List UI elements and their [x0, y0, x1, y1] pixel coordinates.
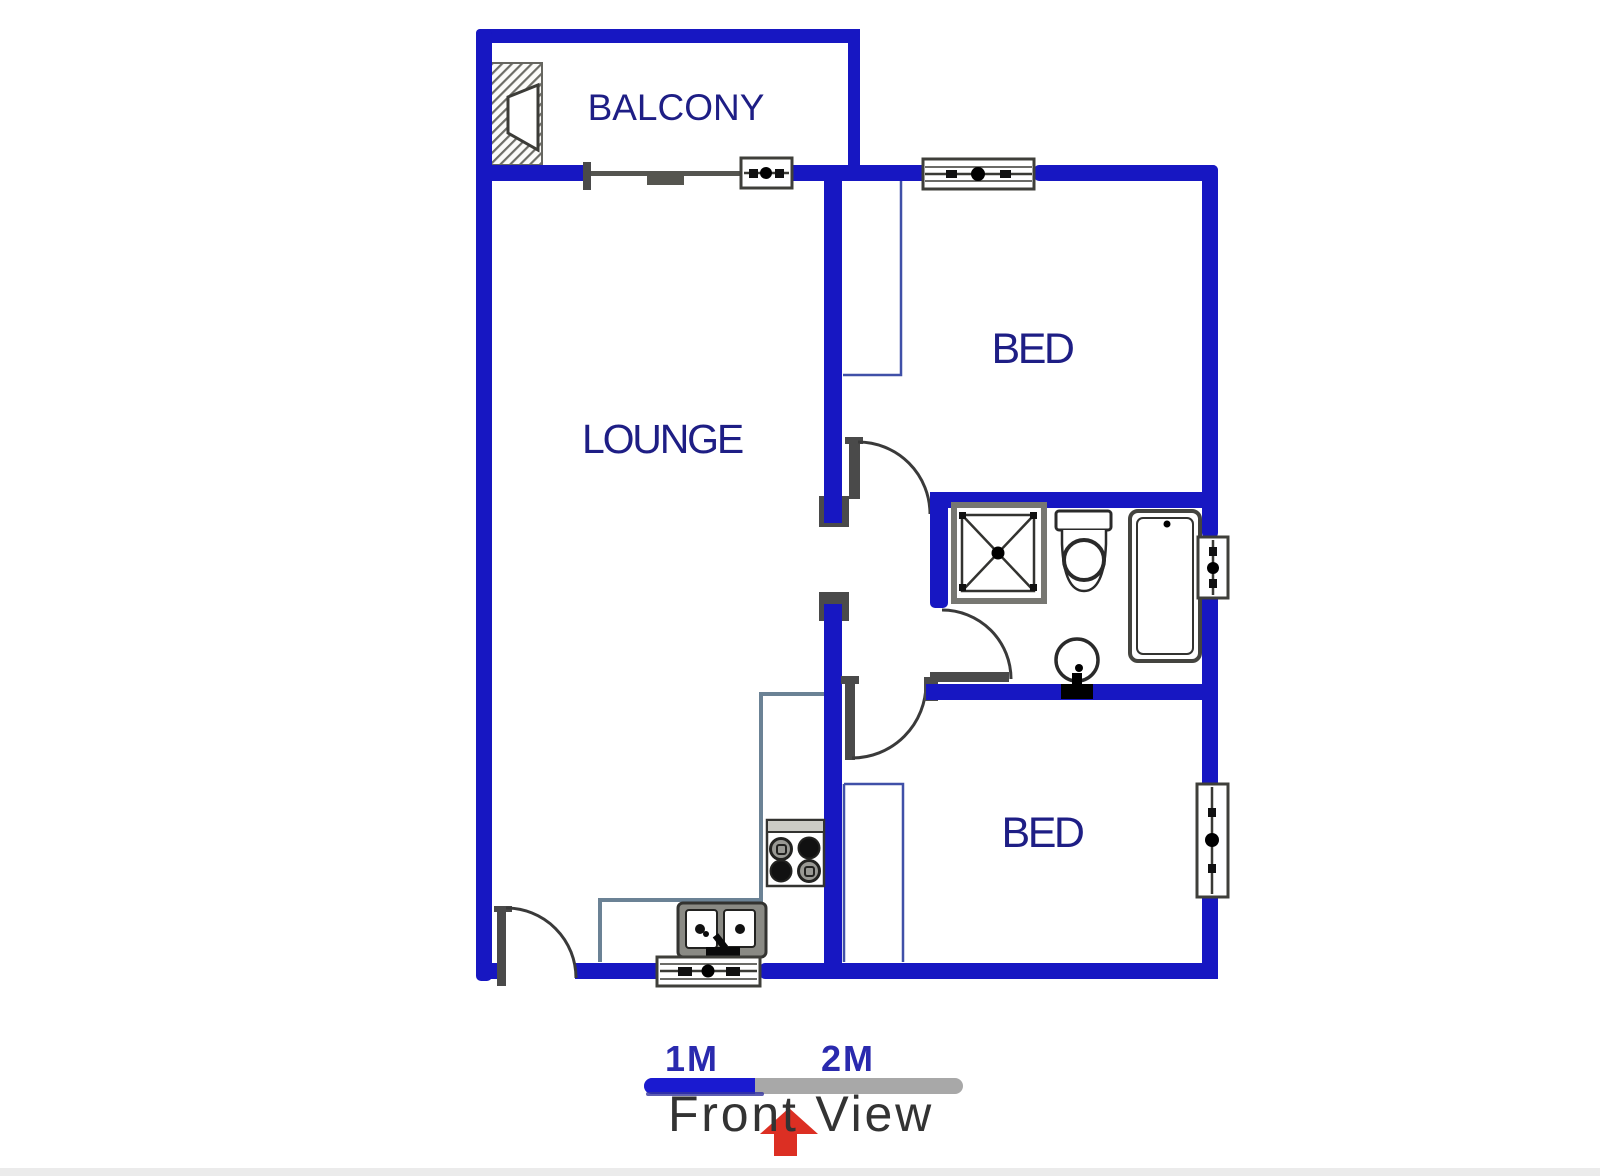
svg-text:1M: 1M [665, 1038, 719, 1079]
svg-text:BALCONY: BALCONY [588, 87, 765, 128]
svg-text:LOUNGE: LOUNGE [582, 416, 743, 462]
svg-text:BED: BED [992, 325, 1073, 373]
svg-text:BED: BED [1002, 809, 1083, 857]
svg-text:2M: 2M [821, 1038, 875, 1079]
svg-text:Front View: Front View [668, 1086, 934, 1142]
